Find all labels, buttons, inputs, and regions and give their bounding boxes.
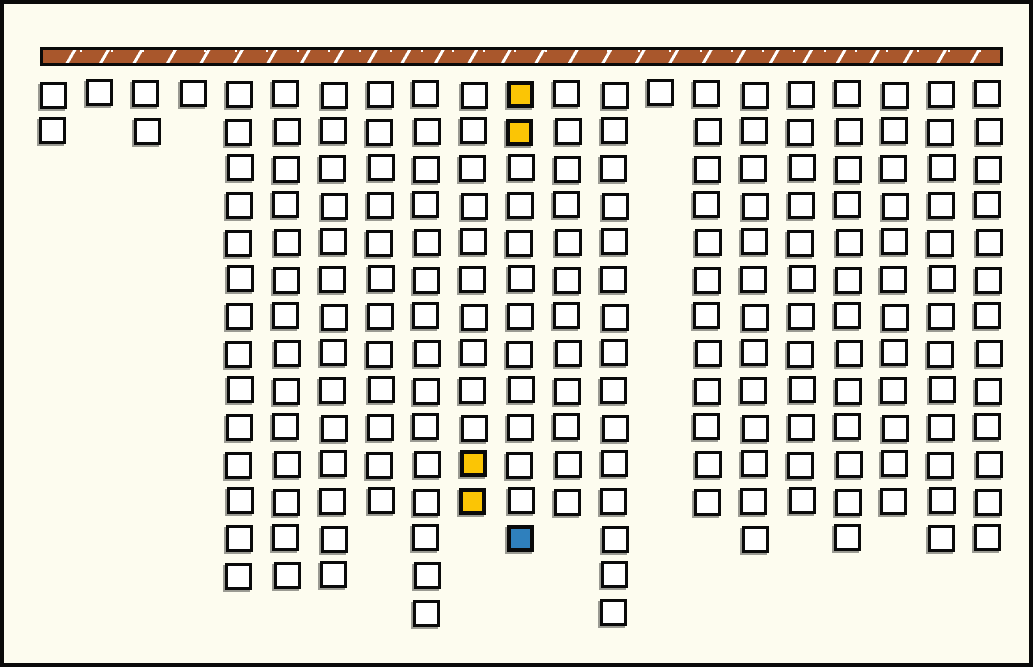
white-block[interactable] [880,488,907,515]
white-block[interactable] [881,117,908,144]
white-block[interactable] [553,191,580,218]
white-block[interactable] [414,451,441,478]
white-block[interactable] [788,192,815,219]
white-block[interactable] [834,191,861,218]
white-block[interactable] [693,191,720,218]
white-block[interactable] [225,452,252,479]
yellow-block[interactable] [459,488,486,515]
white-block[interactable] [414,118,441,145]
white-block[interactable] [602,415,629,442]
white-block[interactable] [412,191,439,218]
white-block[interactable] [553,80,580,107]
white-block[interactable] [508,265,535,292]
white-block[interactable] [412,413,439,440]
white-block[interactable] [273,378,300,405]
white-block[interactable] [555,340,582,367]
white-block[interactable] [367,303,394,330]
white-block[interactable] [742,304,769,331]
white-block[interactable] [928,81,955,108]
white-block[interactable] [412,524,439,551]
white-block[interactable] [320,228,347,255]
white-block[interactable] [459,155,486,182]
white-block[interactable] [320,339,347,366]
white-block[interactable] [226,525,253,552]
white-block[interactable] [366,452,393,479]
white-block[interactable] [412,302,439,329]
white-block[interactable] [414,340,441,367]
white-block[interactable] [974,302,1001,329]
white-block[interactable] [413,489,440,516]
white-block[interactable] [974,524,1001,551]
white-block[interactable] [506,452,533,479]
white-block[interactable] [555,451,582,478]
white-block[interactable] [414,229,441,256]
white-block[interactable] [274,118,301,145]
white-block[interactable] [367,192,394,219]
white-block[interactable] [789,265,816,292]
white-block[interactable] [321,193,348,220]
white-block[interactable] [227,376,254,403]
white-block[interactable] [882,415,909,442]
white-block[interactable] [368,487,395,514]
white-block[interactable] [788,414,815,441]
white-block[interactable] [553,413,580,440]
white-block[interactable] [553,302,580,329]
white-block[interactable] [789,376,816,403]
white-block[interactable] [600,377,627,404]
white-block[interactable] [554,489,581,516]
white-block[interactable] [787,230,814,257]
white-block[interactable] [272,191,299,218]
white-block[interactable] [928,303,955,330]
white-block[interactable] [693,302,720,329]
white-block[interactable] [600,155,627,182]
white-block[interactable] [273,156,300,183]
white-block[interactable] [788,303,815,330]
white-block[interactable] [508,376,535,403]
white-block[interactable] [835,267,862,294]
white-block[interactable] [319,377,346,404]
yellow-block[interactable] [460,450,487,477]
white-block[interactable] [693,413,720,440]
white-block[interactable] [319,155,346,182]
blue-block[interactable] [507,525,534,552]
white-block[interactable] [694,489,721,516]
white-block[interactable] [928,192,955,219]
white-block[interactable] [601,117,628,144]
white-block[interactable] [927,230,954,257]
white-block[interactable] [134,118,161,145]
white-block[interactable] [225,341,252,368]
white-block[interactable] [274,229,301,256]
white-block[interactable] [974,413,1001,440]
white-block[interactable] [461,193,488,220]
white-block[interactable] [321,526,348,553]
white-block[interactable] [506,230,533,257]
white-block[interactable] [368,265,395,292]
white-block[interactable] [320,117,347,144]
white-block[interactable] [787,341,814,368]
white-block[interactable] [647,79,674,106]
yellow-block[interactable] [506,119,533,146]
white-block[interactable] [555,229,582,256]
white-block[interactable] [225,230,252,257]
white-block[interactable] [880,155,907,182]
white-block[interactable] [976,340,1003,367]
white-block[interactable] [86,79,113,106]
white-block[interactable] [459,266,486,293]
white-block[interactable] [226,81,253,108]
white-block[interactable] [507,414,534,441]
white-block[interactable] [601,228,628,255]
white-block[interactable] [40,82,67,109]
white-block[interactable] [39,117,66,144]
white-block[interactable] [506,341,533,368]
white-block[interactable] [741,450,768,477]
white-block[interactable] [975,267,1002,294]
white-block[interactable] [602,82,629,109]
white-block[interactable] [975,156,1002,183]
white-block[interactable] [600,599,627,626]
white-block[interactable] [695,451,722,478]
white-block[interactable] [789,154,816,181]
block-grid [4,4,1029,663]
white-block[interactable] [927,119,954,146]
white-block[interactable] [554,267,581,294]
white-block[interactable] [881,450,908,477]
white-block[interactable] [929,154,956,181]
white-block[interactable] [835,378,862,405]
yellow-block[interactable] [507,81,534,108]
white-block[interactable] [321,82,348,109]
white-block[interactable] [742,82,769,109]
white-block[interactable] [882,304,909,331]
white-block[interactable] [180,80,207,107]
white-block[interactable] [132,80,159,107]
white-block[interactable] [274,562,301,589]
white-block[interactable] [741,117,768,144]
white-block[interactable] [272,413,299,440]
white-block[interactable] [413,600,440,627]
white-block[interactable] [414,562,441,589]
white-block[interactable] [368,376,395,403]
white-block[interactable] [929,376,956,403]
white-block[interactable] [694,267,721,294]
white-block[interactable] [788,81,815,108]
white-block[interactable] [272,524,299,551]
white-block[interactable] [602,193,629,220]
white-block[interactable] [320,450,347,477]
white-block[interactable] [460,339,487,366]
white-block[interactable] [321,304,348,331]
white-block[interactable] [601,339,628,366]
white-block[interactable] [321,415,348,442]
white-block[interactable] [366,119,393,146]
white-block[interactable] [368,154,395,181]
white-block[interactable] [413,156,440,183]
white-block[interactable] [694,156,721,183]
white-block[interactable] [554,156,581,183]
white-block[interactable] [975,489,1002,516]
white-block[interactable] [741,339,768,366]
white-block[interactable] [927,341,954,368]
white-block[interactable] [787,119,814,146]
white-block[interactable] [227,265,254,292]
white-block[interactable] [975,378,1002,405]
white-block[interactable] [461,415,488,442]
white-block[interactable] [226,414,253,441]
white-block[interactable] [880,377,907,404]
white-block[interactable] [601,450,628,477]
white-block[interactable] [836,118,863,145]
white-block[interactable] [320,561,347,588]
white-block[interactable] [366,341,393,368]
white-block[interactable] [834,80,861,107]
white-block[interactable] [319,266,346,293]
white-block[interactable] [882,193,909,220]
white-block[interactable] [742,415,769,442]
white-block[interactable] [272,80,299,107]
white-block[interactable] [319,488,346,515]
white-block[interactable] [693,80,720,107]
white-block[interactable] [274,451,301,478]
white-block[interactable] [227,154,254,181]
white-block[interactable] [787,452,814,479]
white-block[interactable] [602,526,629,553]
white-block[interactable] [227,487,254,514]
white-block[interactable] [225,563,252,590]
white-block[interactable] [555,118,582,145]
white-block[interactable] [460,228,487,255]
white-block[interactable] [695,340,722,367]
white-block[interactable] [602,304,629,331]
white-block[interactable] [740,155,767,182]
white-block[interactable] [789,487,816,514]
white-block[interactable] [836,340,863,367]
white-block[interactable] [740,266,767,293]
white-block[interactable] [366,230,393,257]
white-block[interactable] [929,265,956,292]
white-block[interactable] [413,378,440,405]
white-block[interactable] [835,156,862,183]
white-block[interactable] [928,525,955,552]
white-block[interactable] [695,229,722,256]
white-block[interactable] [929,487,956,514]
white-block[interactable] [882,82,909,109]
white-block[interactable] [459,377,486,404]
white-block[interactable] [600,488,627,515]
white-block[interactable] [742,193,769,220]
white-block[interactable] [834,413,861,440]
white-block[interactable] [974,191,1001,218]
white-block[interactable] [927,452,954,479]
white-block[interactable] [976,451,1003,478]
white-block[interactable] [226,303,253,330]
white-block[interactable] [367,414,394,441]
white-block[interactable] [835,489,862,516]
white-block[interactable] [976,118,1003,145]
white-block[interactable] [225,119,252,146]
white-block[interactable] [740,377,767,404]
white-block[interactable] [274,340,301,367]
white-block[interactable] [508,487,535,514]
white-block[interactable] [461,82,488,109]
white-block[interactable] [273,267,300,294]
white-block[interactable] [740,488,767,515]
white-block[interactable] [694,378,721,405]
white-block[interactable] [460,117,487,144]
white-block[interactable] [881,339,908,366]
white-block[interactable] [461,304,488,331]
white-block[interactable] [880,266,907,293]
white-block[interactable] [273,489,300,516]
white-block[interactable] [695,118,722,145]
white-block[interactable] [834,524,861,551]
white-block[interactable] [741,228,768,255]
game-board [0,0,1033,667]
white-block[interactable] [974,80,1001,107]
white-block[interactable] [508,154,535,181]
white-block[interactable] [836,451,863,478]
white-block[interactable] [976,229,1003,256]
white-block[interactable] [836,229,863,256]
white-block[interactable] [367,81,394,108]
white-block[interactable] [600,266,627,293]
white-block[interactable] [272,302,299,329]
white-block[interactable] [507,303,534,330]
white-block[interactable] [834,302,861,329]
white-block[interactable] [412,80,439,107]
white-block[interactable] [413,267,440,294]
white-block[interactable] [601,561,628,588]
white-block[interactable] [554,378,581,405]
white-block[interactable] [881,228,908,255]
white-block[interactable] [226,192,253,219]
white-block[interactable] [928,414,955,441]
white-block[interactable] [742,526,769,553]
white-block[interactable] [507,192,534,219]
